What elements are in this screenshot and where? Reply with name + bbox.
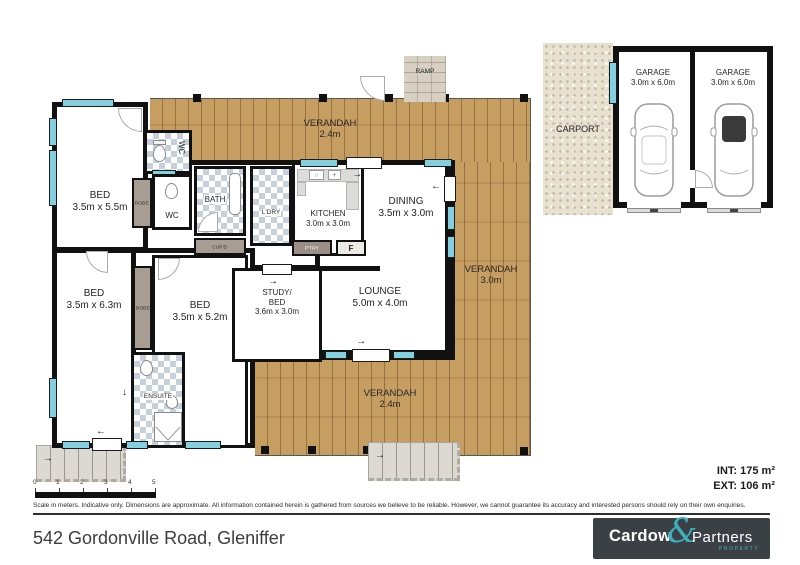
scale-tick-label: 1 — [56, 479, 60, 486]
room-wc-lower: WC — [152, 174, 192, 230]
bed2-label: BED3.5m x 6.3m — [52, 288, 136, 312]
logo-word1: Cardow — [609, 527, 671, 546]
fridge-label: F — [349, 244, 354, 253]
carport: CARPORT — [543, 43, 613, 215]
scale-tick-label: 4 — [128, 479, 132, 486]
verandah-bottom-label: VERANDAH2.4m — [330, 388, 450, 411]
window — [424, 159, 452, 167]
internal-area: INT: 175 m² — [615, 464, 775, 479]
property-address: 542 Gordonville Road, Gleniffer — [33, 528, 285, 549]
door-sill — [352, 349, 390, 362]
agency-logo: Cardow & Partners PROPERTY — [593, 518, 770, 559]
wc-lower-label: WC — [155, 211, 189, 221]
scale-tick-label: 0 — [33, 479, 37, 486]
toilet-tank — [153, 140, 166, 145]
window-sill — [444, 176, 456, 202]
garage-divider-wall — [690, 52, 695, 170]
area-summary: INT: 175 m² EXT: 106 m² — [615, 464, 775, 494]
robe2: ROBE — [133, 266, 152, 350]
garage1-label: GARAGE3.0m x 6.0m — [621, 68, 685, 87]
window — [325, 351, 347, 359]
window-arrow-icon: → — [268, 277, 278, 287]
window-sill — [262, 264, 292, 275]
room-ensuite: ENSUITE — [131, 352, 185, 448]
verandah-right-deck — [452, 162, 531, 456]
dining-label: DINING3.5m x 3.0m — [366, 196, 446, 220]
room-bed2 — [52, 248, 136, 448]
door-arrow-icon: ↓ — [122, 388, 127, 398]
verandah-top-label: VERANDAH2.4m — [270, 118, 390, 141]
room-wc-upper: WC — [144, 130, 192, 174]
stairs-arrow-icon: → — [43, 454, 53, 464]
verandah-post — [308, 446, 316, 454]
window — [49, 118, 57, 146]
study-label: STUDY/BED3.6m x 3.0m — [232, 288, 322, 317]
ramp-label: RAMP — [404, 68, 446, 76]
garage-door-mark — [730, 209, 738, 212]
window — [447, 236, 455, 258]
sink-icon: ○ — [309, 170, 324, 180]
bathtub-icon — [229, 173, 241, 215]
verandah-post — [520, 447, 528, 455]
robe2-label: ROBE — [135, 305, 149, 311]
window-arrow-icon: → — [356, 337, 366, 347]
kitchen-counter — [346, 182, 359, 210]
cupboard: CUP'D — [194, 238, 246, 255]
verandah-post — [261, 446, 269, 454]
stairs-arrow-icon: → — [375, 451, 385, 461]
carport-label: CARPORT — [556, 124, 600, 135]
verandah-post — [319, 94, 327, 102]
garage2-label: GARAGE3.0m x 6.0m — [701, 68, 765, 87]
ensuite-label: ENSUITE — [134, 393, 182, 401]
bath-label: BATH — [197, 195, 233, 205]
window-sill — [346, 157, 382, 169]
scale-tick-label: 3 — [104, 479, 108, 486]
disclaimer-text: Scale in meters. Indicative only. Dimens… — [33, 502, 770, 509]
garage-door-mark — [650, 209, 658, 212]
wall-lounge-top — [315, 266, 380, 271]
divider-line — [33, 513, 770, 515]
toilet-icon — [140, 360, 153, 376]
window — [393, 351, 415, 359]
garage-divider-wall — [690, 188, 695, 202]
toilet-icon — [165, 183, 178, 199]
window-arrow-icon: ← — [431, 182, 441, 192]
window-arrow-icon: → — [352, 170, 362, 180]
door-arrow-icon: ← — [96, 427, 106, 437]
kitchen-label: KITCHEN3.0m x 3.0m — [295, 209, 361, 228]
pantry: P'TRY — [292, 240, 332, 256]
verandah-post — [520, 94, 528, 102]
verandah-post — [385, 94, 393, 102]
stairs-bottom: → — [368, 442, 460, 481]
bed1-label: BED3.5m x 5.5m — [52, 190, 148, 214]
window — [185, 441, 221, 449]
logo-word2: Partners — [692, 529, 753, 546]
window — [447, 206, 455, 230]
window — [49, 150, 57, 206]
window — [126, 441, 148, 449]
cupboard-label: CUP'D — [213, 244, 228, 250]
car-icon — [630, 100, 678, 205]
laundry-label: L'DRY — [253, 209, 289, 217]
toilet-icon — [153, 145, 166, 162]
car-icon — [710, 100, 758, 205]
fridge: F — [336, 240, 366, 256]
room-laundry: L'DRY — [250, 166, 292, 246]
scale-tick-label: 2 — [80, 479, 84, 486]
verandah-post — [193, 94, 201, 102]
wc-upper-label: WC — [177, 141, 186, 154]
kitchen-counter — [297, 182, 306, 196]
floorplan-page: RAMP → → WC WC ROBE BATH CUP'D — [0, 0, 800, 565]
window — [49, 378, 57, 418]
window — [62, 441, 90, 449]
verandah-right-label: VERANDAH3.0m — [452, 264, 530, 287]
scale-bar: 0 1 2 3 4 5 — [33, 479, 163, 499]
stove-icon: + — [328, 170, 341, 180]
window — [62, 99, 114, 107]
scale-tick-label: 5 — [152, 479, 156, 486]
external-area: EXT: 106 m² — [615, 479, 775, 494]
window — [300, 159, 338, 167]
scale-bar-fill — [35, 492, 156, 498]
shower-icon — [154, 412, 182, 442]
ramp: RAMP — [404, 56, 446, 102]
logo-tagline: PROPERTY — [719, 546, 759, 552]
door-sill — [92, 438, 122, 451]
lounge-label: LOUNGE5.0m x 4.0m — [320, 286, 440, 310]
window — [609, 62, 617, 104]
pantry-label: P'TRY — [305, 245, 319, 251]
